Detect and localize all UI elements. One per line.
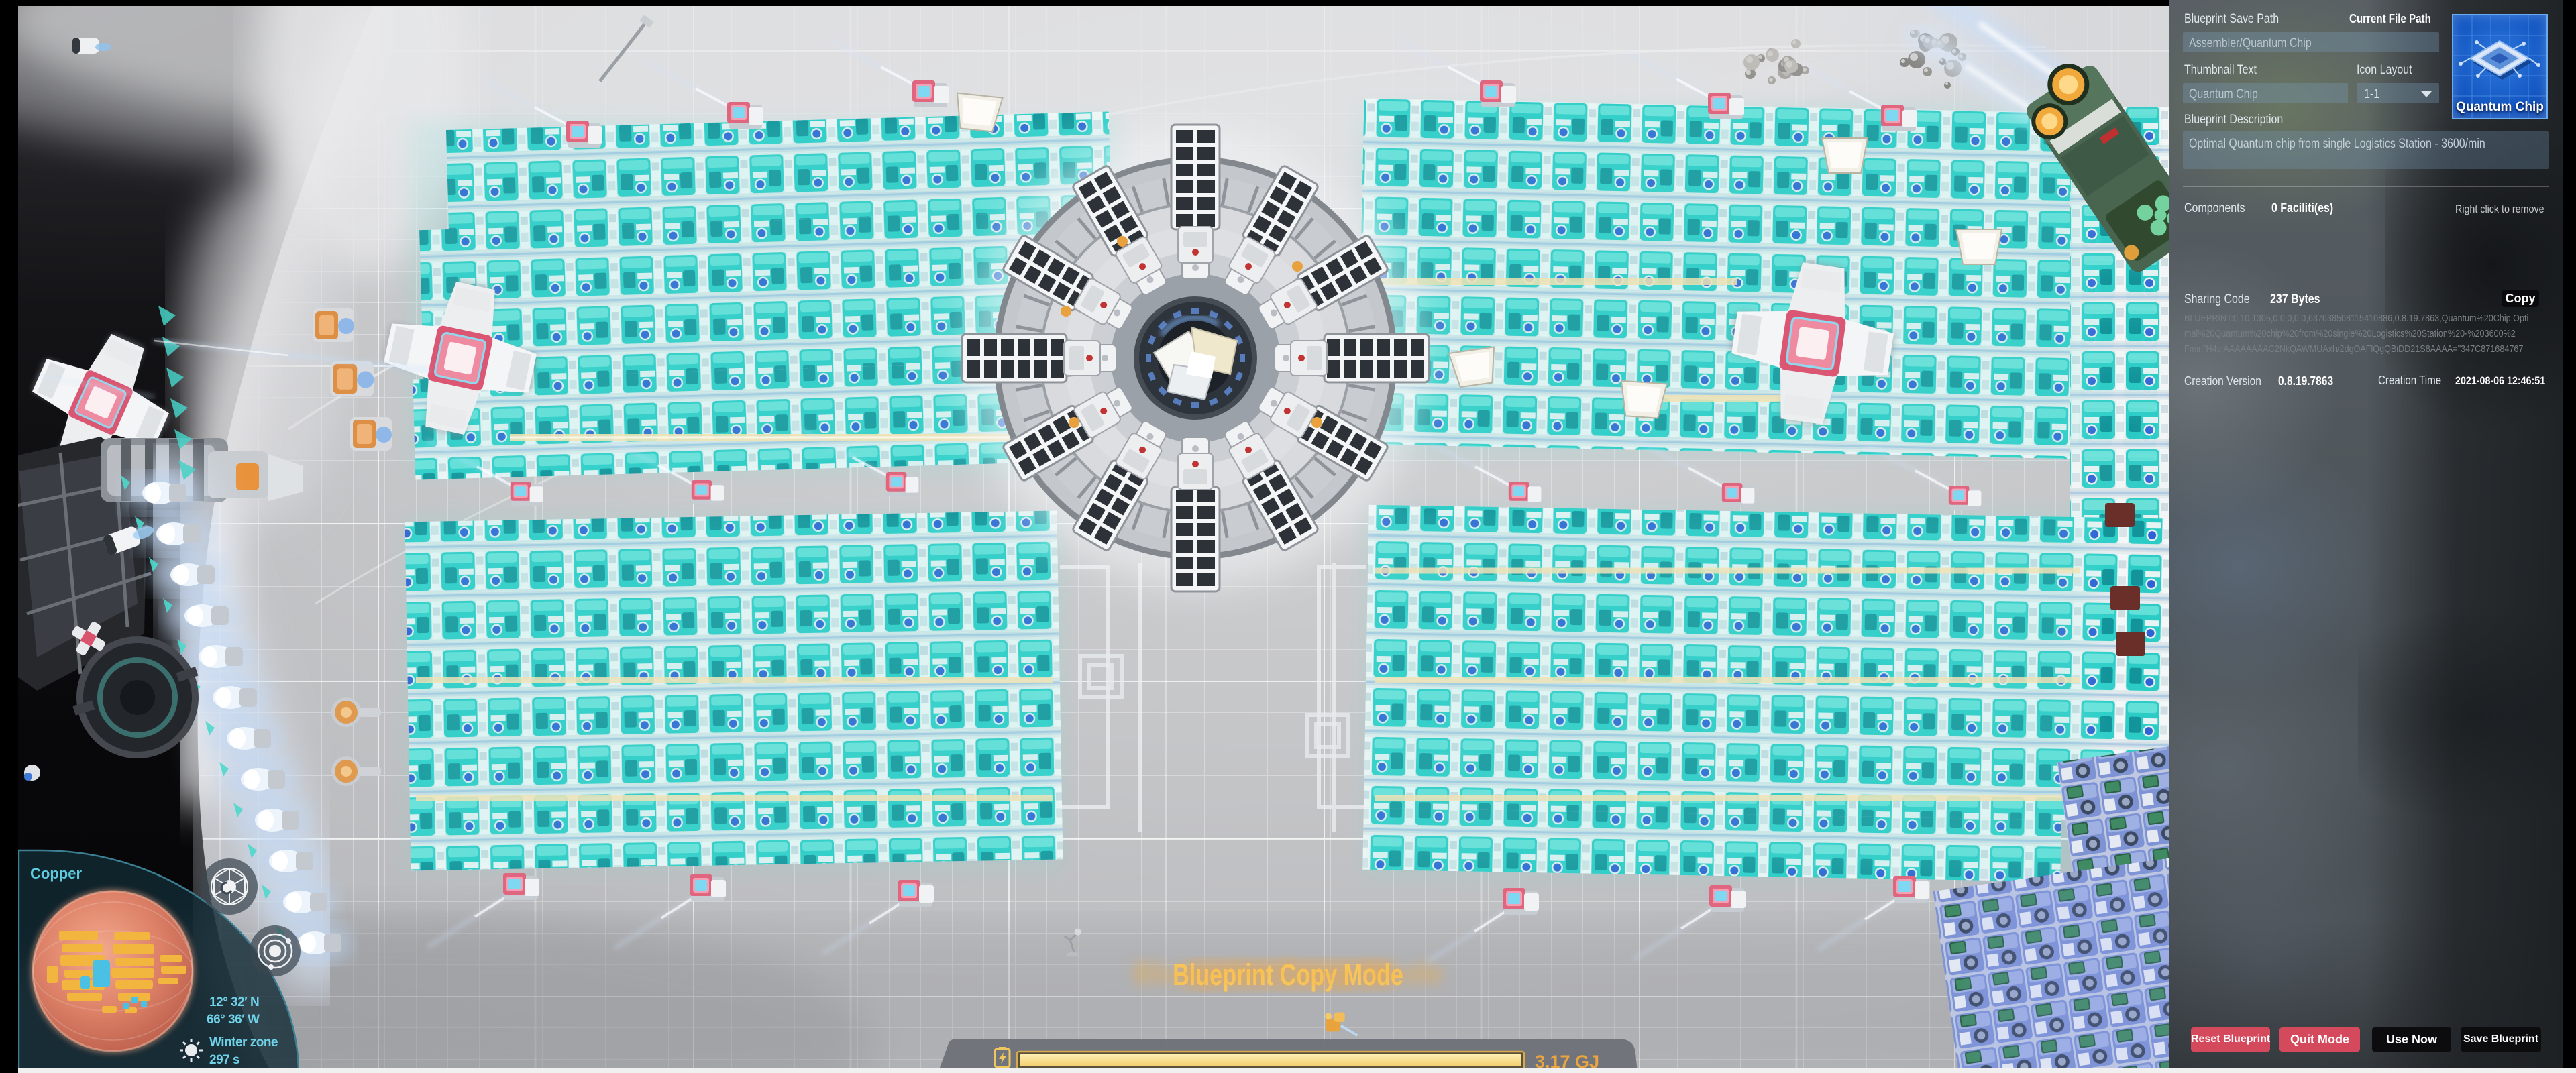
svg-text:Blueprint Copy Mode: Blueprint Copy Mode	[1133, 956, 1444, 991]
svg-text:12° 32′ N: 12° 32′ N	[209, 995, 259, 1009]
svg-text:66° 36′ W: 66° 36′ W	[207, 1013, 260, 1027]
svg-text:Copper: Copper	[30, 865, 82, 882]
svg-text:297 s: 297 s	[209, 1053, 239, 1067]
svg-text:Winter zone: Winter zone	[209, 1035, 278, 1050]
